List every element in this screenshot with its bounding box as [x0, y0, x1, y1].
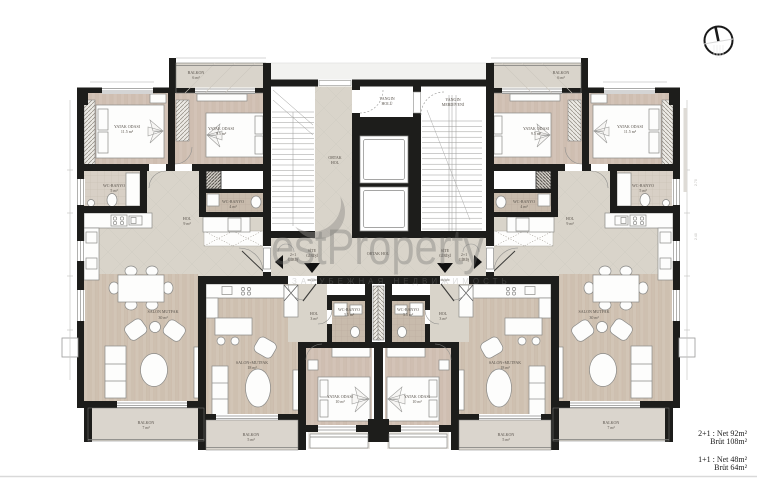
svg-text:30 m²: 30 m² [589, 315, 599, 320]
svg-text:5 m²: 5 m² [502, 437, 510, 442]
svg-text:Brüt 64m²: Brüt 64m² [714, 463, 747, 472]
svg-text:4 m²: 4 m² [229, 204, 237, 209]
svg-text:3 m²: 3 m² [439, 316, 447, 321]
svg-text:SALON MUTFAK: SALON MUTFAK [579, 309, 610, 314]
svg-text:3 m²: 3 m² [310, 316, 318, 321]
svg-text:5 m²: 5 m² [639, 188, 647, 193]
svg-text:3.5 m²: 3.5 m² [403, 312, 414, 317]
svg-text:7 m²: 7 m² [607, 425, 615, 430]
svg-text:HOL: HOL [331, 160, 340, 165]
svg-text:2.40: 2.40 [694, 233, 698, 240]
svg-text:10 m²: 10 m² [335, 399, 345, 404]
svg-text:9 m²: 9 m² [566, 221, 574, 226]
svg-text:11.5 m²: 11.5 m² [121, 129, 134, 134]
svg-text:18 m²: 18 m² [500, 365, 510, 370]
svg-text:5 m²: 5 m² [110, 188, 118, 193]
svg-text:HOLÜ: HOLÜ [381, 101, 392, 106]
svg-text:ЗАРУБЕЖНАЯ НЕДВИЖИМОСТЬ: ЗАРУБЕЖНАЯ НЕДВИЖИМОСТЬ [292, 277, 511, 286]
svg-text:MERDİVENİ: MERDİVENİ [442, 102, 465, 107]
svg-text:9.5 m²: 9.5 m² [216, 131, 227, 136]
svg-text:6 m²: 6 m² [192, 75, 200, 80]
svg-text:9 m²: 9 m² [183, 221, 191, 226]
svg-text:18 m²: 18 m² [247, 365, 257, 370]
svg-text:7 m²: 7 m² [142, 425, 150, 430]
svg-text:6 m²: 6 m² [557, 75, 565, 80]
svg-text:5 m²: 5 m² [247, 437, 255, 442]
svg-text:estProperty: estProperty [271, 219, 484, 275]
svg-text:4 m²: 4 m² [520, 204, 528, 209]
svg-text:3.5 m²: 3.5 m² [344, 312, 355, 317]
svg-text:10 m²: 10 m² [412, 399, 422, 404]
svg-text:SALON MUTFAK: SALON MUTFAK [148, 309, 179, 314]
svg-text:11.5 m²: 11.5 m² [624, 129, 637, 134]
svg-text:2.70: 2.70 [694, 179, 698, 186]
svg-text:Brüt 108m²: Brüt 108m² [710, 437, 747, 446]
svg-text:30 m²: 30 m² [158, 315, 168, 320]
svg-text:9.5 m²: 9.5 m² [531, 131, 542, 136]
